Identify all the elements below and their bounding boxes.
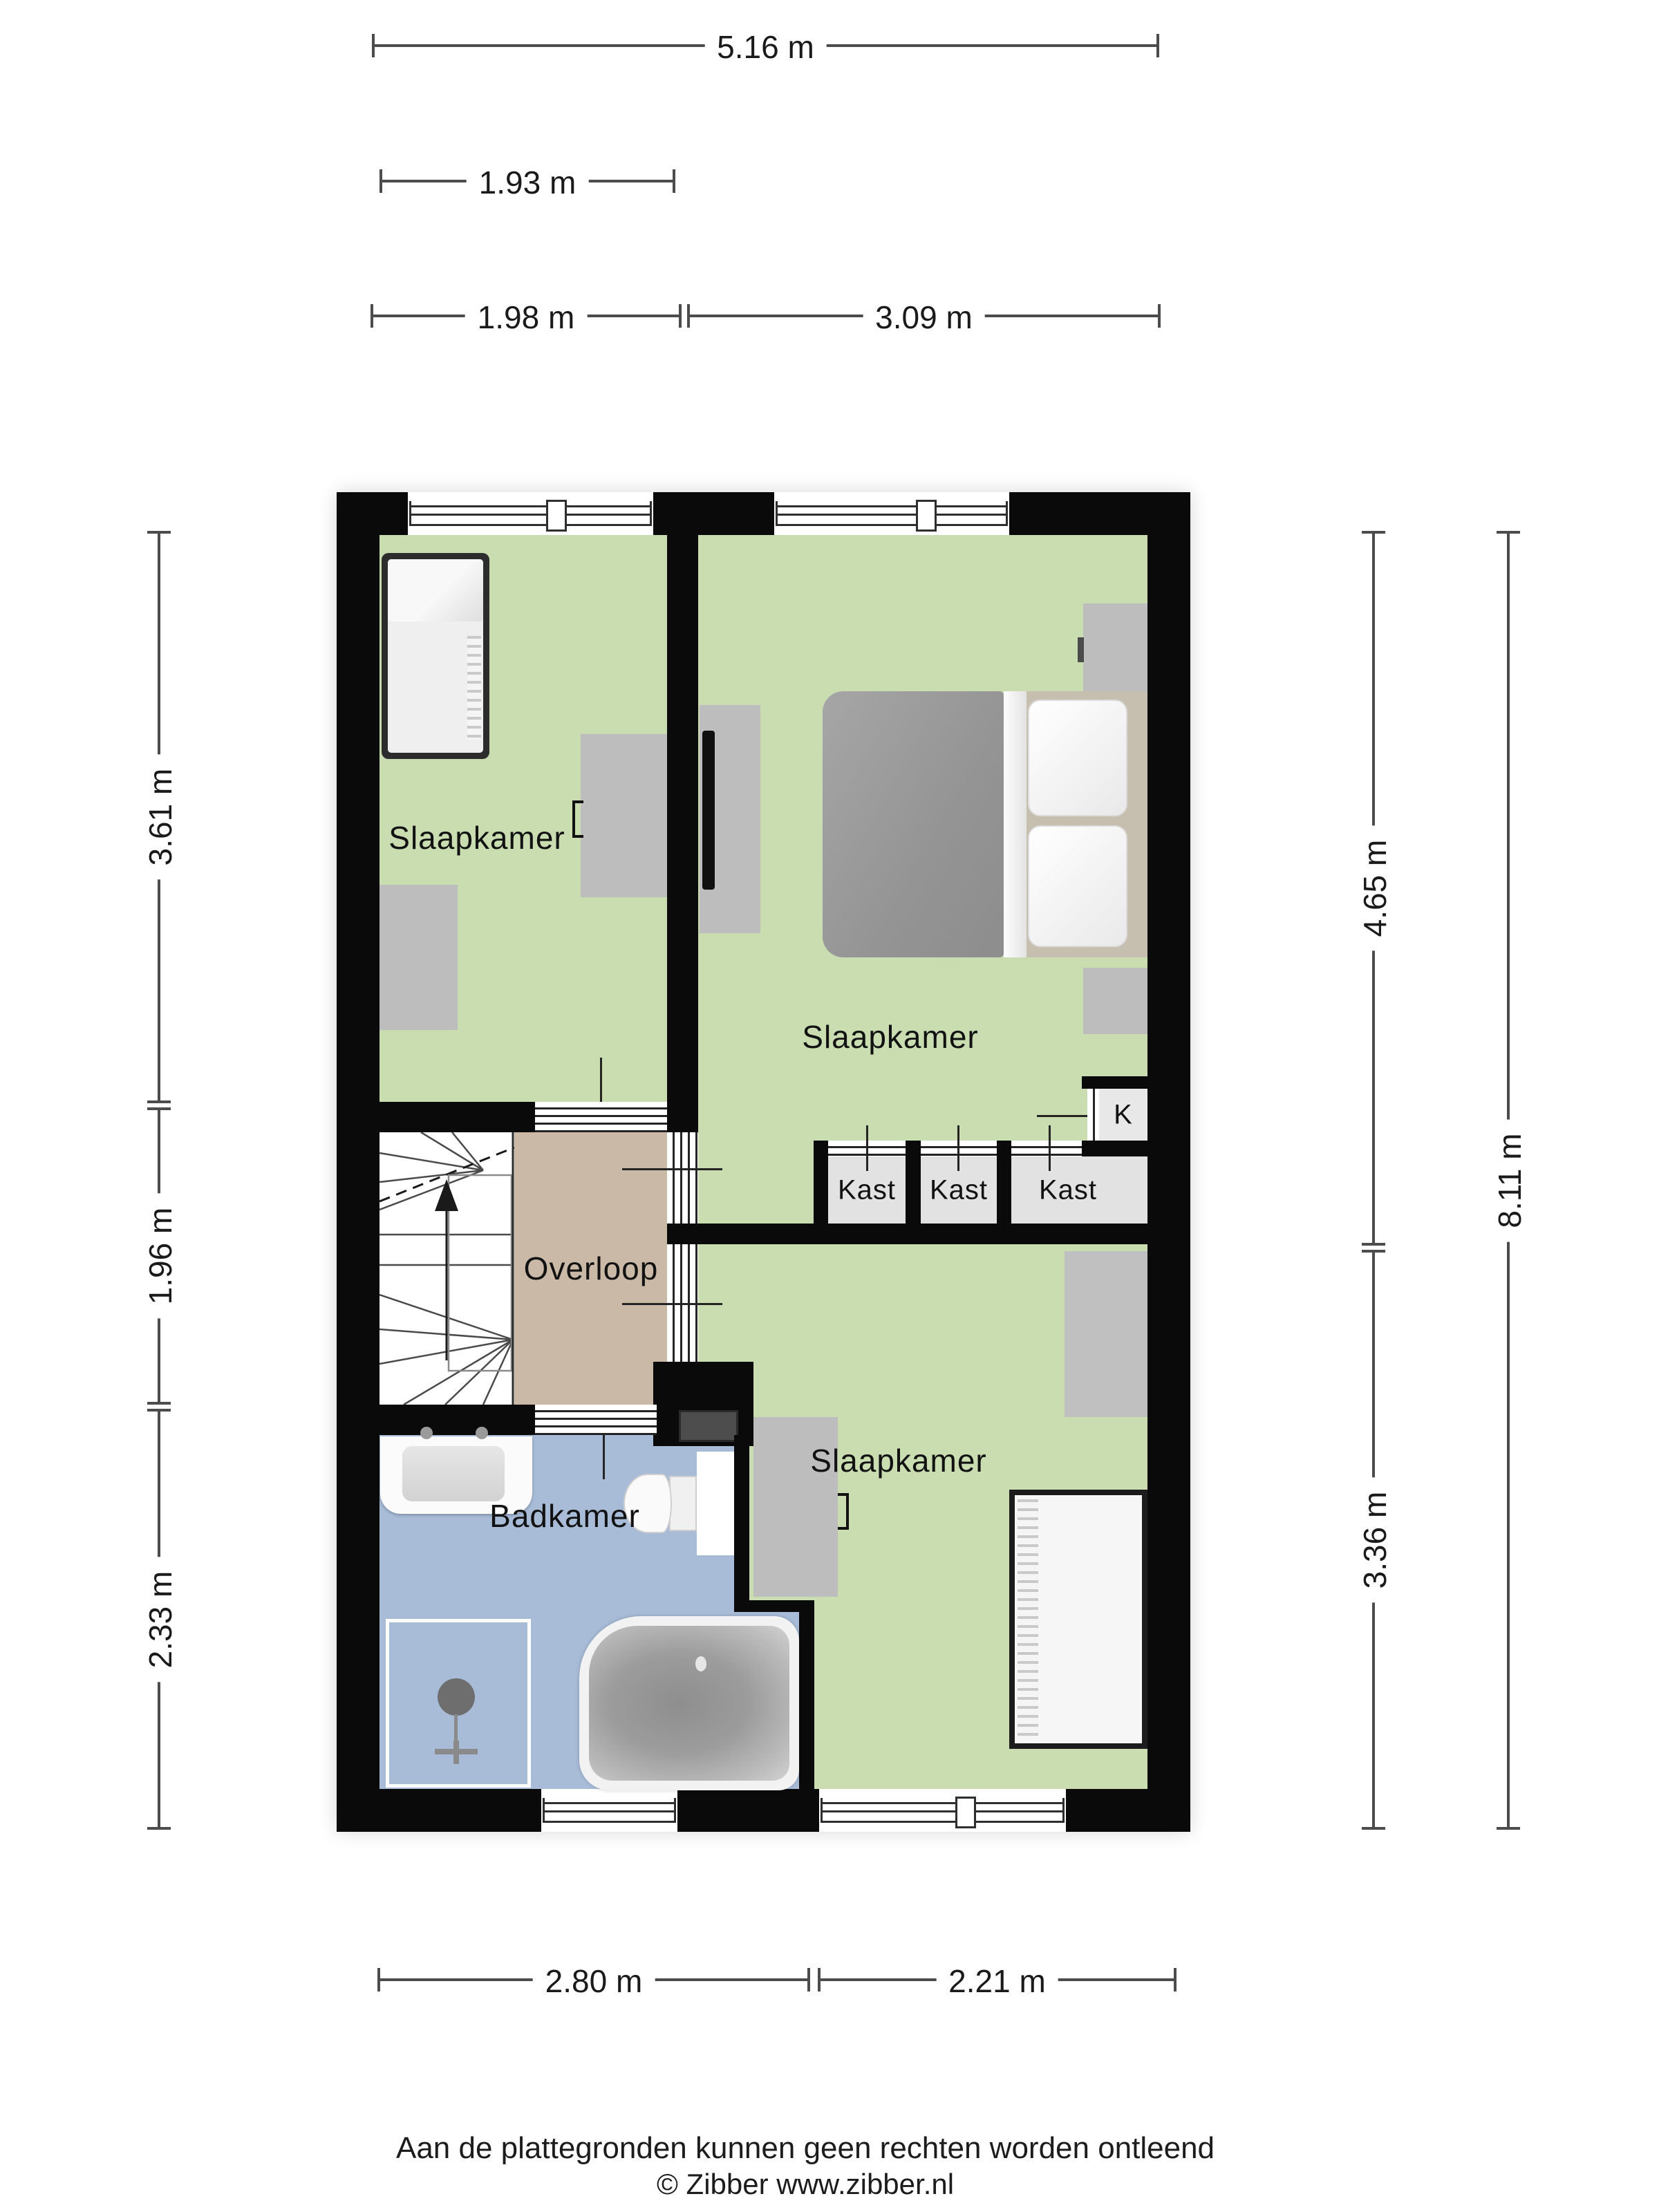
window-mullion	[916, 500, 937, 532]
nightstand-south	[1083, 968, 1147, 1034]
dim-label: 2.21 m	[936, 1961, 1058, 2001]
bathtub-drain	[695, 1656, 706, 1671]
wall-divider-corner	[667, 1102, 698, 1132]
label-badkamer: Badkamer	[489, 1497, 640, 1535]
door-swing-tick	[1049, 1125, 1051, 1171]
dim-right-upper: 4.65 m	[1372, 532, 1375, 1244]
wall-kast-left-post	[814, 1141, 828, 1224]
tap-right	[476, 1427, 488, 1439]
dim-bottom-bath: 2.80 m	[379, 1978, 809, 1981]
dim-left-bathroom: 2.33 m	[158, 1410, 160, 1828]
window-mullion	[955, 1797, 976, 1828]
window-frame	[543, 1798, 545, 1823]
wall-right	[1147, 492, 1190, 1832]
window-frame	[821, 1798, 823, 1823]
dim-tick	[379, 169, 382, 193]
dim-tick	[1362, 531, 1385, 534]
dim-top-right-room: 3.09 m	[688, 315, 1159, 317]
dim-tick	[147, 531, 171, 534]
label-kast-3: Kast	[1039, 1175, 1097, 1206]
wall-bedroom-stairs	[379, 1102, 535, 1132]
dim-label: 1.98 m	[465, 297, 588, 337]
door-bedroom-right-top	[667, 1132, 698, 1224]
wall-stairs-bath	[379, 1405, 535, 1435]
wall-top-3	[1009, 492, 1190, 535]
dim-tick	[679, 304, 682, 328]
door-swing-tick	[957, 1125, 959, 1171]
window-glass	[411, 505, 650, 526]
window-frame	[674, 1798, 676, 1823]
bathtub-basin	[589, 1626, 789, 1781]
window-glass	[545, 1802, 674, 1823]
wall-top-1	[337, 492, 408, 535]
staircase	[379, 1132, 514, 1405]
label-kast-1: Kast	[838, 1175, 896, 1206]
dim-label: 8.11 m	[1490, 1119, 1530, 1241]
window-glass	[823, 1802, 1062, 1823]
door-swing-tick	[622, 1168, 722, 1170]
dim-top-stairs: 1.93 m	[381, 180, 674, 182]
wall-top-2	[653, 492, 774, 535]
dim-tick	[1174, 1968, 1177, 1991]
dim-tick	[147, 1107, 171, 1110]
dim-tick	[1362, 1827, 1385, 1830]
label-slaapkamer-bottom: Slaapkamer	[810, 1442, 986, 1479]
dim-label: 5.16 m	[704, 27, 827, 67]
dim-label: 3.36 m	[1355, 1477, 1395, 1602]
dim-label: 2.80 m	[533, 1961, 655, 2001]
room-floor-strip	[698, 1132, 814, 1224]
wardrobe-bottom-bedroom	[1065, 1251, 1147, 1417]
door-swing-tick	[622, 1303, 722, 1305]
window-bottom-bath	[541, 1789, 677, 1832]
bed-double-sheet	[1004, 691, 1027, 957]
dim-label: 3.09 m	[863, 297, 985, 337]
toilet-niche	[697, 1452, 734, 1555]
nightstand-north	[1083, 603, 1147, 691]
dim-label: 1.93 m	[467, 162, 589, 203]
door-bedroom-left	[535, 1102, 667, 1132]
wall-kast-divider-1	[906, 1141, 921, 1224]
wall-k-bottom	[1082, 1141, 1147, 1156]
wall-bedroom-divider	[667, 535, 698, 1102]
bed-blanket-fold	[467, 636, 481, 740]
dim-tick	[1497, 531, 1520, 534]
dim-tick	[687, 304, 690, 328]
bed-pillow-area	[388, 559, 483, 621]
stairs-up-arrow	[435, 1179, 458, 1211]
tap-left	[420, 1427, 433, 1439]
dim-tick	[818, 1968, 821, 1991]
shower-head	[438, 1678, 475, 1716]
dim-tick	[371, 304, 373, 328]
dim-tick	[147, 1402, 171, 1405]
window-top-left	[408, 492, 653, 535]
bed-pillow-2	[1028, 825, 1127, 947]
wardrobe-left-bedroom	[379, 885, 458, 1030]
desk-chair-bottom	[838, 1493, 849, 1530]
window-bottom-bedroom	[819, 1789, 1066, 1832]
window-frame	[1062, 1798, 1065, 1823]
desk-left-bedroom	[581, 734, 667, 897]
wall-bath-east-upper	[734, 1435, 749, 1612]
desk-chair-left	[572, 800, 583, 838]
label-slaapkamer-right: Slaapkamer	[802, 1018, 978, 1056]
dim-left-landing: 1.96 m	[158, 1109, 160, 1403]
window-glass	[778, 505, 1006, 526]
wall-kast-divider-2	[997, 1141, 1011, 1224]
dim-tick	[1158, 304, 1161, 328]
door-k	[1087, 1089, 1099, 1141]
dim-tick	[147, 1827, 171, 1830]
dim-left-bedroom: 3.61 m	[158, 532, 160, 1102]
label-slaapkamer-left: Slaapkamer	[388, 819, 565, 856]
duct-shaft	[679, 1410, 738, 1442]
wall-bottom-2	[677, 1789, 819, 1832]
dim-right-lower: 3.36 m	[1372, 1251, 1375, 1828]
bed-pillow-1	[1028, 700, 1127, 816]
dim-tick	[807, 1968, 810, 1991]
footer-copyright: © Zibber www.zibber.nl	[657, 2168, 954, 2201]
washbasin-bowl	[402, 1446, 505, 1501]
wall-bath-step	[734, 1600, 814, 1612]
dim-tick	[1362, 1243, 1385, 1246]
toilet-cistern	[669, 1476, 697, 1531]
bed-slats	[1018, 1499, 1038, 1739]
door-swing-tick	[866, 1125, 868, 1171]
dim-tick	[1362, 1250, 1385, 1253]
dim-label: 4.65 m	[1355, 826, 1395, 951]
window-mullion	[546, 500, 567, 532]
wall-k-top	[1082, 1076, 1147, 1089]
window-frame	[650, 501, 652, 526]
dim-tick	[377, 1968, 380, 1991]
bed-single-bottom	[1009, 1490, 1147, 1749]
bed-double-duvet	[823, 691, 1004, 957]
label-kast-2: Kast	[930, 1175, 988, 1206]
tv-screen	[702, 731, 715, 890]
dim-tick	[1497, 1827, 1520, 1830]
dim-tick	[147, 1100, 171, 1103]
window-top-right	[774, 492, 1009, 535]
wall-bottom-3	[1066, 1789, 1190, 1832]
dim-label: 2.33 m	[140, 1557, 180, 1682]
floorplan-page: 5.16 m 1.93 m 1.98 m 3.09 m 3.61 m 1.96 …	[0, 0, 1659, 2212]
wall-bath-east-lower	[799, 1612, 814, 1789]
door-swing-tick	[600, 1058, 602, 1102]
shower-mixer-v	[453, 1741, 459, 1764]
wall-bottom-1	[337, 1789, 541, 1832]
floor-plan: Slaapkamer Slaapkamer Slaapkamer Overloo…	[337, 492, 1190, 1832]
door-swing-tick	[1037, 1115, 1087, 1117]
staircase-treads	[379, 1132, 514, 1405]
dim-label: 1.96 m	[140, 1194, 180, 1319]
door-swing-tick	[603, 1435, 605, 1479]
label-k-closet: K	[1114, 1100, 1133, 1131]
dim-right-total: 8.11 m	[1507, 532, 1510, 1828]
dim-tick	[372, 34, 375, 57]
dim-top-left-room: 1.98 m	[372, 315, 680, 317]
dim-tick	[673, 169, 675, 193]
window-frame	[776, 501, 778, 526]
window-frame	[1006, 501, 1008, 526]
footer-disclaimer: Aan de plattegronden kunnen geen rechten…	[396, 2131, 1215, 2166]
bathtub	[579, 1616, 799, 1790]
bed-single-left	[382, 553, 489, 759]
dim-label: 3.61 m	[140, 755, 180, 880]
nightstand-handle	[1078, 637, 1084, 662]
dim-top-total: 5.16 m	[373, 44, 1158, 47]
wall-left	[337, 492, 379, 1832]
door-badkamer	[535, 1405, 657, 1435]
window-frame	[409, 501, 411, 526]
wall-kast-bottom	[684, 1224, 1147, 1244]
dim-tick	[1156, 34, 1159, 57]
dim-bottom-bedroom: 2.21 m	[819, 1978, 1175, 1981]
label-overloop: Overloop	[524, 1250, 659, 1287]
dim-tick	[147, 1409, 171, 1412]
